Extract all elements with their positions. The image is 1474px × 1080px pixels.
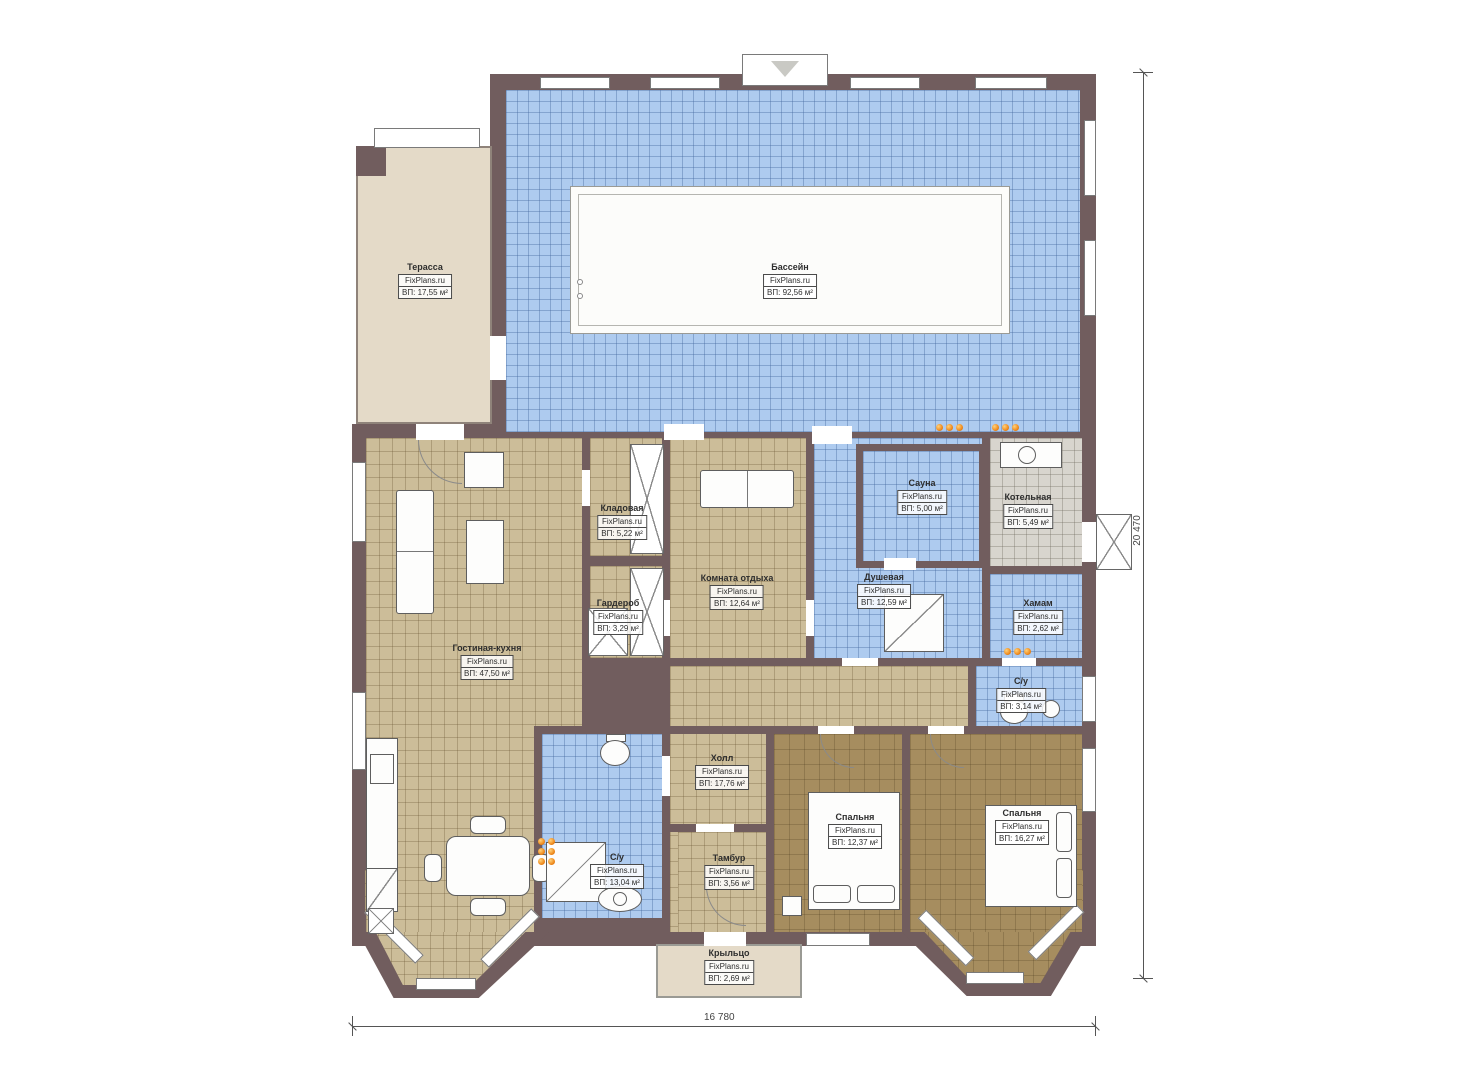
room-site: FixPlans.ru	[829, 825, 881, 836]
pillow	[857, 885, 895, 903]
room-label-hall: Холл FixPlans.ru ВП: 17,76 м²	[695, 753, 749, 790]
room-site: FixPlans.ru	[1014, 611, 1062, 622]
room-site: FixPlans.ru	[997, 689, 1045, 700]
door-gap	[1082, 522, 1096, 562]
wall-partition	[534, 726, 1082, 734]
door-gap	[812, 426, 852, 444]
room-area: ВП: 16,27 м²	[996, 832, 1048, 844]
room-name: Котельная	[1004, 492, 1051, 503]
room-name: Терасса	[407, 262, 443, 273]
room-label-rest: Комната отдыха FixPlans.ru ВП: 12,64 м²	[701, 573, 774, 610]
room-name: Гардероб	[597, 598, 640, 609]
room-name: С/у	[1014, 676, 1028, 687]
room-area: ВП: 2,62 м²	[1014, 622, 1062, 634]
wall-partition	[982, 438, 990, 660]
room-name: Сауна	[908, 478, 935, 489]
sofa-seam	[747, 471, 748, 507]
dimension-line-right	[1143, 72, 1144, 978]
dining-table	[446, 836, 530, 896]
pillow	[813, 885, 851, 903]
room-label-shower: Душевая FixPlans.ru ВП: 12,59 м²	[857, 572, 911, 609]
door-gap	[806, 600, 814, 636]
coffee-table	[466, 520, 504, 584]
window	[352, 692, 366, 770]
wall-partition	[534, 726, 542, 924]
window	[1084, 120, 1096, 196]
room-name: Холл	[711, 753, 734, 764]
door-gap	[1002, 658, 1036, 666]
dimension-width-label: 16 780	[704, 1012, 735, 1023]
door-gap	[662, 756, 670, 796]
room-area: ВП: 13,04 м²	[591, 876, 643, 888]
window	[975, 77, 1047, 89]
room-label-bedroom1: Спальня FixPlans.ru ВП: 12,37 м²	[828, 812, 882, 849]
stove	[370, 754, 394, 784]
pool-ladder	[577, 279, 583, 285]
room-name: Комната отдыха	[701, 573, 774, 584]
room-label-wardrobe: Гардероб FixPlans.ru ВП: 3,29 м²	[593, 598, 643, 635]
room-label-pool: Бассейн FixPlans.ru ВП: 92,56 м²	[763, 262, 817, 299]
armchair	[464, 452, 504, 488]
room-area: ВП: 92,56 м²	[764, 286, 816, 298]
room-label-porch: Крыльцо FixPlans.ru ВП: 2,69 м²	[704, 948, 754, 985]
room-area: ВП: 5,22 м²	[598, 527, 646, 539]
room-label-wc-right: С/у FixPlans.ru ВП: 3,14 м²	[996, 676, 1046, 713]
window	[1082, 748, 1096, 812]
door-gap	[928, 726, 964, 734]
wall-partition	[534, 918, 670, 932]
room-area: ВП: 5,00 м²	[898, 502, 946, 514]
sofa	[700, 470, 794, 508]
room-area: ВП: 47,50 м²	[461, 667, 513, 679]
window	[540, 77, 610, 89]
room-site: FixPlans.ru	[594, 611, 642, 622]
room-label-tambur: Тамбур FixPlans.ru ВП: 3,56 м²	[704, 853, 754, 890]
window	[806, 933, 870, 946]
room-site: FixPlans.ru	[598, 516, 646, 527]
room-area: ВП: 3,14 м²	[997, 700, 1045, 712]
room-label-wc-lower: С/у FixPlans.ru ВП: 13,04 м²	[590, 852, 644, 889]
room-area: ВП: 3,29 м²	[594, 622, 642, 634]
room-area: ВП: 12,64 м²	[711, 597, 763, 609]
room-label-bedroom2: Спальня FixPlans.ru ВП: 16,27 м²	[995, 808, 1049, 845]
canopy-marker	[374, 128, 480, 148]
room-site: FixPlans.ru	[1004, 505, 1052, 516]
radiator-dots	[992, 424, 1019, 431]
pool-basin	[570, 186, 1010, 334]
bay-window-glass	[416, 978, 476, 990]
room-site: FixPlans.ru	[705, 866, 753, 877]
room-name: Спальня	[836, 812, 875, 823]
wall-partition	[582, 556, 670, 566]
room-name: Душевая	[864, 572, 904, 583]
wall-partition	[982, 566, 1082, 574]
wall-partition	[902, 726, 910, 932]
room-label-boiler: Котельная FixPlans.ru ВП: 5,49 м²	[1003, 492, 1053, 529]
vent-triangle	[771, 61, 799, 77]
chair	[470, 898, 506, 916]
room-area: ВП: 17,55 м²	[399, 286, 451, 298]
sofa	[396, 490, 434, 614]
room-name: Крыльцо	[709, 948, 750, 959]
room-site: FixPlans.ru	[591, 865, 643, 876]
door-gap	[842, 658, 878, 666]
radiator-dots	[936, 424, 963, 431]
door-gap	[582, 470, 590, 506]
vent-marker	[742, 54, 828, 86]
room-site: FixPlans.ru	[696, 766, 748, 777]
front-door-gap	[704, 932, 746, 946]
room-area: ВП: 12,59 м²	[858, 596, 910, 608]
sofa-seam	[397, 551, 433, 552]
room-label-hamam: Хамам FixPlans.ru ВП: 2,62 м²	[1013, 598, 1063, 635]
door-gap	[884, 558, 916, 570]
room-label-storage: Кладовая FixPlans.ru ВП: 5,22 м²	[597, 503, 647, 540]
window	[1084, 240, 1096, 316]
window	[1082, 676, 1096, 722]
pool-ladder	[577, 293, 583, 299]
room-area: ВП: 17,76 м²	[696, 777, 748, 789]
bay-window-glass	[966, 972, 1024, 984]
room-site: FixPlans.ru	[898, 491, 946, 502]
dimension-height-label: 20 470	[1132, 515, 1143, 546]
door-gap	[664, 424, 704, 440]
room-name: Бассейн	[771, 262, 808, 273]
pillow	[1056, 812, 1072, 852]
pedestal-sink-base	[613, 892, 627, 906]
room-label-living: Гостиная-кухня FixPlans.ru ВП: 47,50 м²	[453, 643, 522, 680]
window	[650, 77, 720, 89]
door-gap	[696, 824, 734, 832]
room-area: ВП: 5,49 м²	[1004, 516, 1052, 528]
dimension-line-bottom	[352, 1026, 1096, 1027]
room-area: ВП: 12,37 м²	[829, 836, 881, 848]
boiler-exterior-door	[1096, 514, 1132, 570]
radiator-dots	[1004, 648, 1031, 655]
room-name: Гостиная-кухня	[453, 643, 522, 654]
radiator-dots	[538, 838, 555, 865]
room-site: FixPlans.ru	[705, 961, 753, 972]
window	[850, 77, 920, 89]
bed	[808, 792, 900, 910]
chair	[424, 854, 442, 882]
nightstand	[782, 896, 802, 916]
room-name: С/у	[610, 852, 624, 863]
terrace-pillar	[356, 146, 386, 176]
room-name: Хамам	[1023, 598, 1052, 609]
room-site: FixPlans.ru	[996, 821, 1048, 832]
room-name: Спальня	[1003, 808, 1042, 819]
corner-cabinet	[368, 908, 394, 934]
room-area: ВП: 3,56 м²	[705, 877, 753, 889]
room-area: ВП: 2,69 м²	[705, 972, 753, 984]
door-gap	[490, 336, 506, 380]
room-site: FixPlans.ru	[764, 275, 816, 286]
pillow	[1056, 858, 1072, 898]
toilet-bowl	[600, 740, 630, 766]
room-site: FixPlans.ru	[858, 585, 910, 596]
room-site: FixPlans.ru	[461, 656, 513, 667]
wc-right-wall	[968, 658, 976, 734]
kitchen-sink	[366, 868, 398, 912]
room-site: FixPlans.ru	[399, 275, 451, 286]
room-site: FixPlans.ru	[711, 586, 763, 597]
door-gap	[416, 424, 464, 440]
door-gap	[818, 726, 854, 734]
boiler-sink	[1018, 446, 1036, 464]
room-name: Тамбур	[713, 853, 746, 864]
floor-plan: Терасса FixPlans.ru ВП: 17,55 м² Бассейн…	[0, 0, 1474, 1080]
chair	[470, 816, 506, 834]
room-name: Кладовая	[600, 503, 643, 514]
room-label-terrace: Терасса FixPlans.ru ВП: 17,55 м²	[398, 262, 452, 299]
pool-inner-edge	[578, 194, 1002, 326]
room-label-sauna: Сауна FixPlans.ru ВП: 5,00 м²	[897, 478, 947, 515]
window	[352, 462, 366, 542]
